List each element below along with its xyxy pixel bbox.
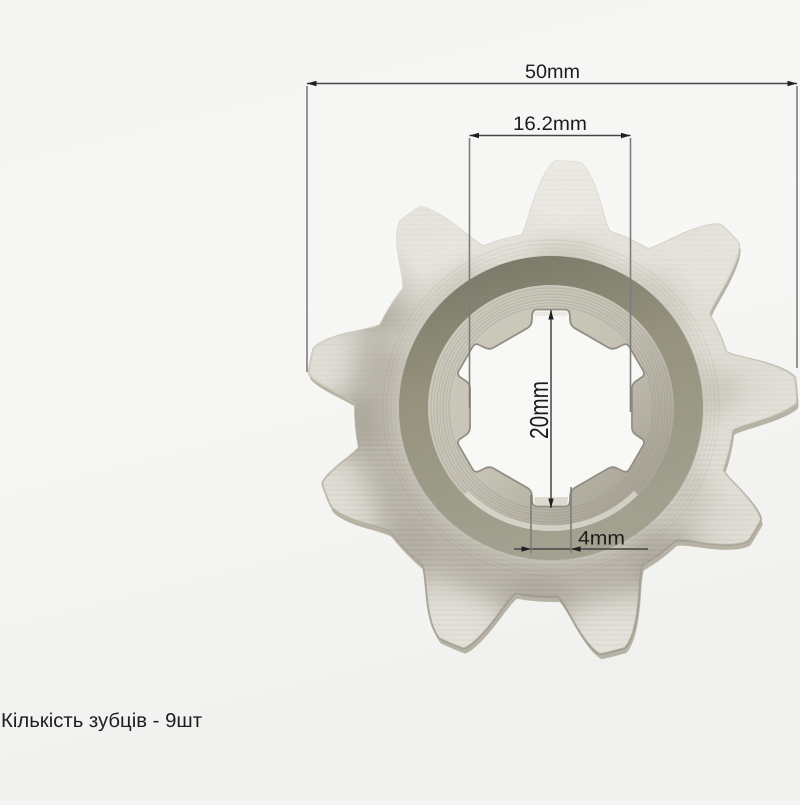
svg-text:16.2mm: 16.2mm (513, 113, 587, 135)
svg-text:4mm: 4mm (578, 528, 625, 550)
svg-text:Кількість зубців - 9шт: Кількість зубців - 9шт (1, 710, 202, 732)
svg-text:50mm: 50mm (525, 61, 580, 83)
svg-text:20mm: 20mm (524, 381, 554, 439)
